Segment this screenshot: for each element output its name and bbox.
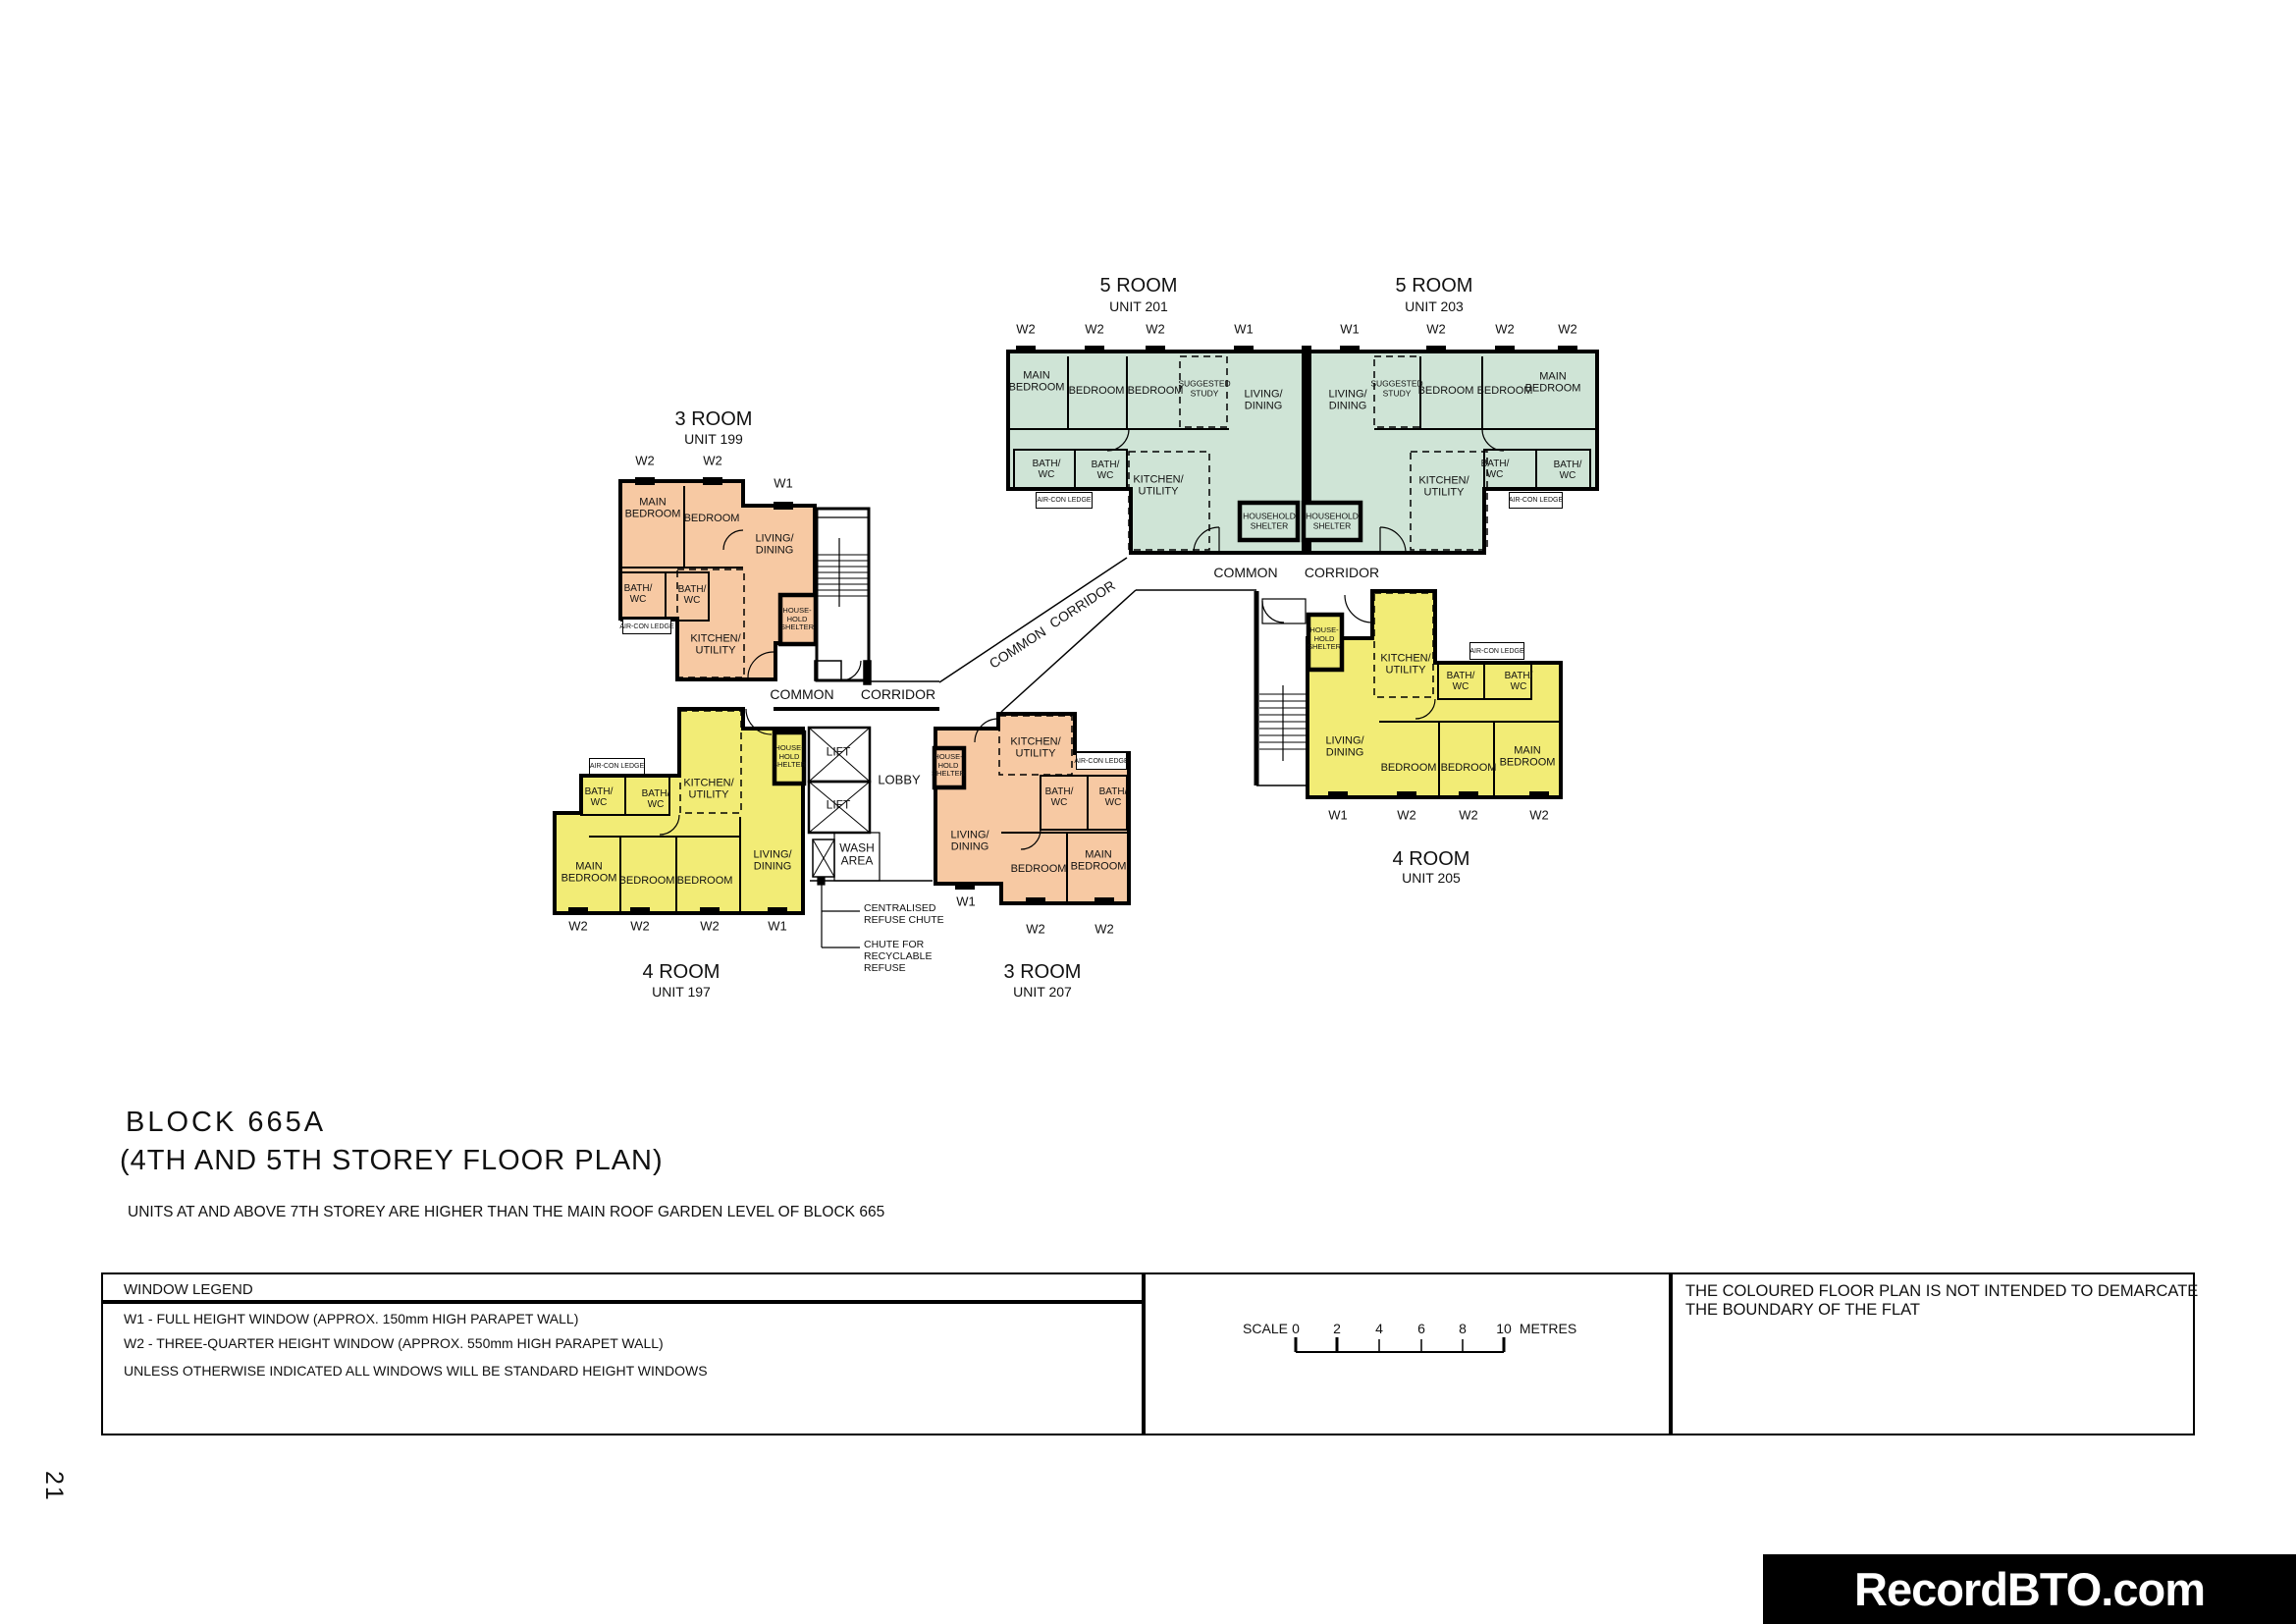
lift-label: LIFT (827, 745, 851, 758)
room-label-kitchen-utility: KITCHEN/ UTILITY (1380, 653, 1430, 677)
room-label-kitchen-utility: KITCHEN/ UTILITY (1010, 736, 1060, 761)
room-label-living-dining: LIVING/ DINING (755, 533, 793, 558)
legend-divider (103, 1300, 1142, 1304)
unit-197-type: 4 ROOM (643, 961, 721, 983)
room-label-household-shelter: HOUSEHOLD SHELTER (1306, 512, 1359, 530)
staircase-b (1256, 591, 1308, 785)
unit-199-type: 3 ROOM (675, 408, 753, 430)
room-label-bedroom: BEDROOM (677, 875, 733, 887)
aircon-ledge-label: AIR-CON LEDGE (590, 763, 644, 770)
room-label-bedroom: BEDROOM (684, 513, 740, 524)
room-label-living-dining: LIVING/ DINING (1244, 389, 1282, 413)
unit-201-number: UNIT 201 (1109, 299, 1168, 315)
aircon-ledge-label: AIR-CON LEDGE (1509, 497, 1563, 504)
room-label-bath-wc: BATH/ WC (678, 584, 707, 606)
wash-area-label: WASH AREA (839, 842, 875, 869)
window-label: W2 (1558, 323, 1577, 338)
scale-tick-label: 10 (1496, 1322, 1512, 1337)
floor-plan-page: AIR-CON LEDGE AIR-CON LEDGE AIR-CON LEDG… (0, 0, 2296, 1624)
room-label-kitchen-utility: KITCHEN/ UTILITY (690, 633, 740, 658)
room-label-kitchen-utility: KITCHEN/ UTILITY (1418, 475, 1468, 500)
window-label: W1 (956, 895, 976, 910)
corridor-label-corridor: CORRIDOR (861, 687, 935, 703)
window-label: W1 (774, 477, 793, 492)
room-label-suggested-study: SUGGESTED STUDY (1370, 379, 1422, 398)
room-label-main-bedroom: MAIN BEDROOM (1525, 371, 1581, 396)
legend-w2-line: W2 - THREE-QUARTER HEIGHT WINDOW (APPROX… (124, 1336, 664, 1352)
window-label: W2 (1426, 323, 1446, 338)
aircon-ledge-label: AIR-CON LEDGE (1469, 648, 1523, 655)
room-label-household-shelter: HOUSE- HOLD SHELTER (773, 744, 806, 770)
window-label: W1 (768, 920, 787, 935)
centralised-refuse-chute-label: CENTRALISED REFUSE CHUTE (864, 903, 944, 927)
scale-unit-label: METRES (1520, 1322, 1576, 1337)
room-label-bath-wc: BATH/ WC (1554, 460, 1582, 481)
unit-203-type: 5 ROOM (1396, 275, 1473, 297)
room-label-main-bedroom: MAIN BEDROOM (1009, 370, 1065, 395)
room-label-bath-wc: BATH/ WC (1099, 786, 1128, 808)
aircon-ledge-label: AIR-CON LEDGE (1074, 758, 1128, 765)
window-label: W1 (1328, 809, 1348, 824)
room-label-suggested-study: SUGGESTED STUDY (1178, 379, 1230, 398)
window-label: W2 (703, 455, 722, 469)
room-label-bath-wc: BATH/ WC (1092, 460, 1120, 481)
unit-199-number: UNIT 199 (684, 432, 743, 448)
corridor-label-common: COMMON (1213, 566, 1277, 581)
room-label-main-bedroom: MAIN BEDROOM (1071, 849, 1127, 874)
window-legend-box: WINDOW LEGEND W1 - FULL HEIGHT WINDOW (A… (101, 1272, 1144, 1435)
window-label: W2 (1529, 809, 1549, 824)
room-label-bedroom: BEDROOM (1381, 762, 1437, 774)
window-label: W2 (1397, 809, 1416, 824)
room-label-bath-wc: BATH/ WC (1045, 786, 1074, 808)
room-label-bath-wc: BATH/ WC (624, 583, 653, 605)
aircon-ledge-201: AIR-CON LEDGE (1036, 492, 1093, 509)
window-label: W2 (1459, 809, 1478, 824)
unit-207-number: UNIT 207 (1013, 985, 1072, 1001)
lobby-label: LOBBY (878, 774, 920, 788)
window-label: W1 (1340, 323, 1360, 338)
scale-tick-label: 0 (1292, 1322, 1300, 1337)
room-label-main-bedroom: MAIN BEDROOM (561, 861, 617, 886)
window-label: W2 (568, 920, 588, 935)
scale-tick-label: 6 (1417, 1322, 1425, 1337)
room-label-household-shelter: HOUSE- HOLD SHELTER (780, 607, 814, 632)
room-label-bath-wc: BATH/ WC (1447, 671, 1475, 692)
room-label-living-dining: LIVING/ DINING (950, 830, 988, 854)
unit-205-number: UNIT 205 (1402, 871, 1461, 887)
room-label-living-dining: LIVING/ DINING (1328, 389, 1366, 413)
room-label-household-shelter: HOUSEHOLD SHELTER (1243, 512, 1296, 530)
legend-note: UNLESS OTHERWISE INDICATED ALL WINDOWS W… (124, 1364, 708, 1380)
window-label: W2 (700, 920, 720, 935)
unit-201-type: 5 ROOM (1100, 275, 1178, 297)
room-label-bath-wc: BATH/ WC (1481, 459, 1510, 480)
brand-watermark: RecordBTO.com (1763, 1554, 2296, 1624)
window-label: W2 (635, 455, 655, 469)
scale-label: SCALE (1243, 1322, 1288, 1337)
unit-203-number: UNIT 203 (1405, 299, 1464, 315)
room-label-bedroom: BEDROOM (1418, 385, 1474, 397)
room-label-kitchen-utility: KITCHEN/ UTILITY (683, 778, 733, 802)
scale-tick-label: 2 (1333, 1322, 1341, 1337)
room-label-bath-wc: BATH/ WC (585, 786, 614, 808)
room-label-household-shelter: HOUSE- HOLD SHELTER (932, 753, 965, 779)
window-label: W2 (1085, 323, 1104, 338)
room-label-main-bedroom: MAIN BEDROOM (1500, 745, 1556, 770)
legend-w1-line: W1 - FULL HEIGHT WINDOW (APPROX. 150mm H… (124, 1312, 578, 1327)
unit-197-number: UNIT 197 (652, 985, 711, 1001)
aircon-ledge-197: AIR-CON LEDGE (589, 758, 645, 775)
room-label-kitchen-utility: KITCHEN/ UTILITY (1133, 474, 1183, 499)
room-label-bedroom: BEDROOM (1128, 385, 1184, 397)
room-label-living-dining: LIVING/ DINING (753, 849, 791, 874)
unit-207-type: 3 ROOM (1004, 961, 1082, 983)
unit-205-type: 4 ROOM (1393, 848, 1470, 870)
page-number: 21 (39, 1471, 68, 1502)
aircon-ledge-label: AIR-CON LEDGE (619, 623, 673, 630)
room-label-main-bedroom: MAIN BEDROOM (625, 497, 681, 521)
scale-tick-label: 4 (1375, 1322, 1383, 1337)
scale-tick-label: 8 (1459, 1322, 1467, 1337)
window-label: W2 (1016, 323, 1036, 338)
aircon-ledge-205: AIR-CON LEDGE (1469, 642, 1524, 660)
window-label: W2 (1495, 323, 1515, 338)
room-label-bath-wc: BATH/ WC (642, 788, 670, 810)
aircon-ledge-203: AIR-CON LEDGE (1509, 492, 1563, 509)
window-label: W2 (630, 920, 650, 935)
window-label: W2 (1095, 923, 1114, 938)
storey-title: (4TH AND 5TH STOREY FLOOR PLAN) (120, 1145, 664, 1176)
recyclable-chute-label: CHUTE FOR RECYCLABLE REFUSE (864, 940, 932, 974)
staircase-a (815, 509, 869, 680)
chute-leaders (818, 878, 860, 947)
window-legend-header: WINDOW LEGEND (124, 1282, 253, 1299)
room-label-bath-wc: BATH/ WC (1505, 671, 1533, 692)
room-label-bedroom: BEDROOM (1011, 863, 1067, 875)
room-label-bedroom: BEDROOM (619, 875, 675, 887)
window-label: W2 (1026, 923, 1045, 938)
room-label-bath-wc: BATH/ WC (1033, 459, 1061, 480)
aircon-ledge-199: AIR-CON LEDGE (622, 619, 671, 634)
room-label-bedroom: BEDROOM (1069, 385, 1125, 397)
room-label-household-shelter: HOUSE- HOLD SHELTER (1308, 626, 1341, 652)
aircon-ledge-label: AIR-CON LEDGE (1037, 497, 1091, 504)
window-label: W1 (1234, 323, 1254, 338)
window-label: W2 (1146, 323, 1165, 338)
lift-label: LIFT (827, 798, 851, 811)
room-label-bedroom: BEDROOM (1441, 762, 1497, 774)
scale-box (1144, 1272, 1671, 1435)
roof-garden-note: UNITS AT AND ABOVE 7TH STOREY ARE HIGHER… (128, 1204, 884, 1220)
corridor-label-common: COMMON (770, 687, 833, 703)
disclaimer-text: THE COLOURED FLOOR PLAN IS NOT INTENDED … (1685, 1282, 2206, 1321)
block-title: BLOCK 665A (126, 1107, 326, 1138)
aircon-ledge-207: AIR-CON LEDGE (1076, 752, 1127, 770)
room-label-living-dining: LIVING/ DINING (1325, 735, 1363, 760)
corridor-label-corridor: CORRIDOR (1305, 566, 1379, 581)
